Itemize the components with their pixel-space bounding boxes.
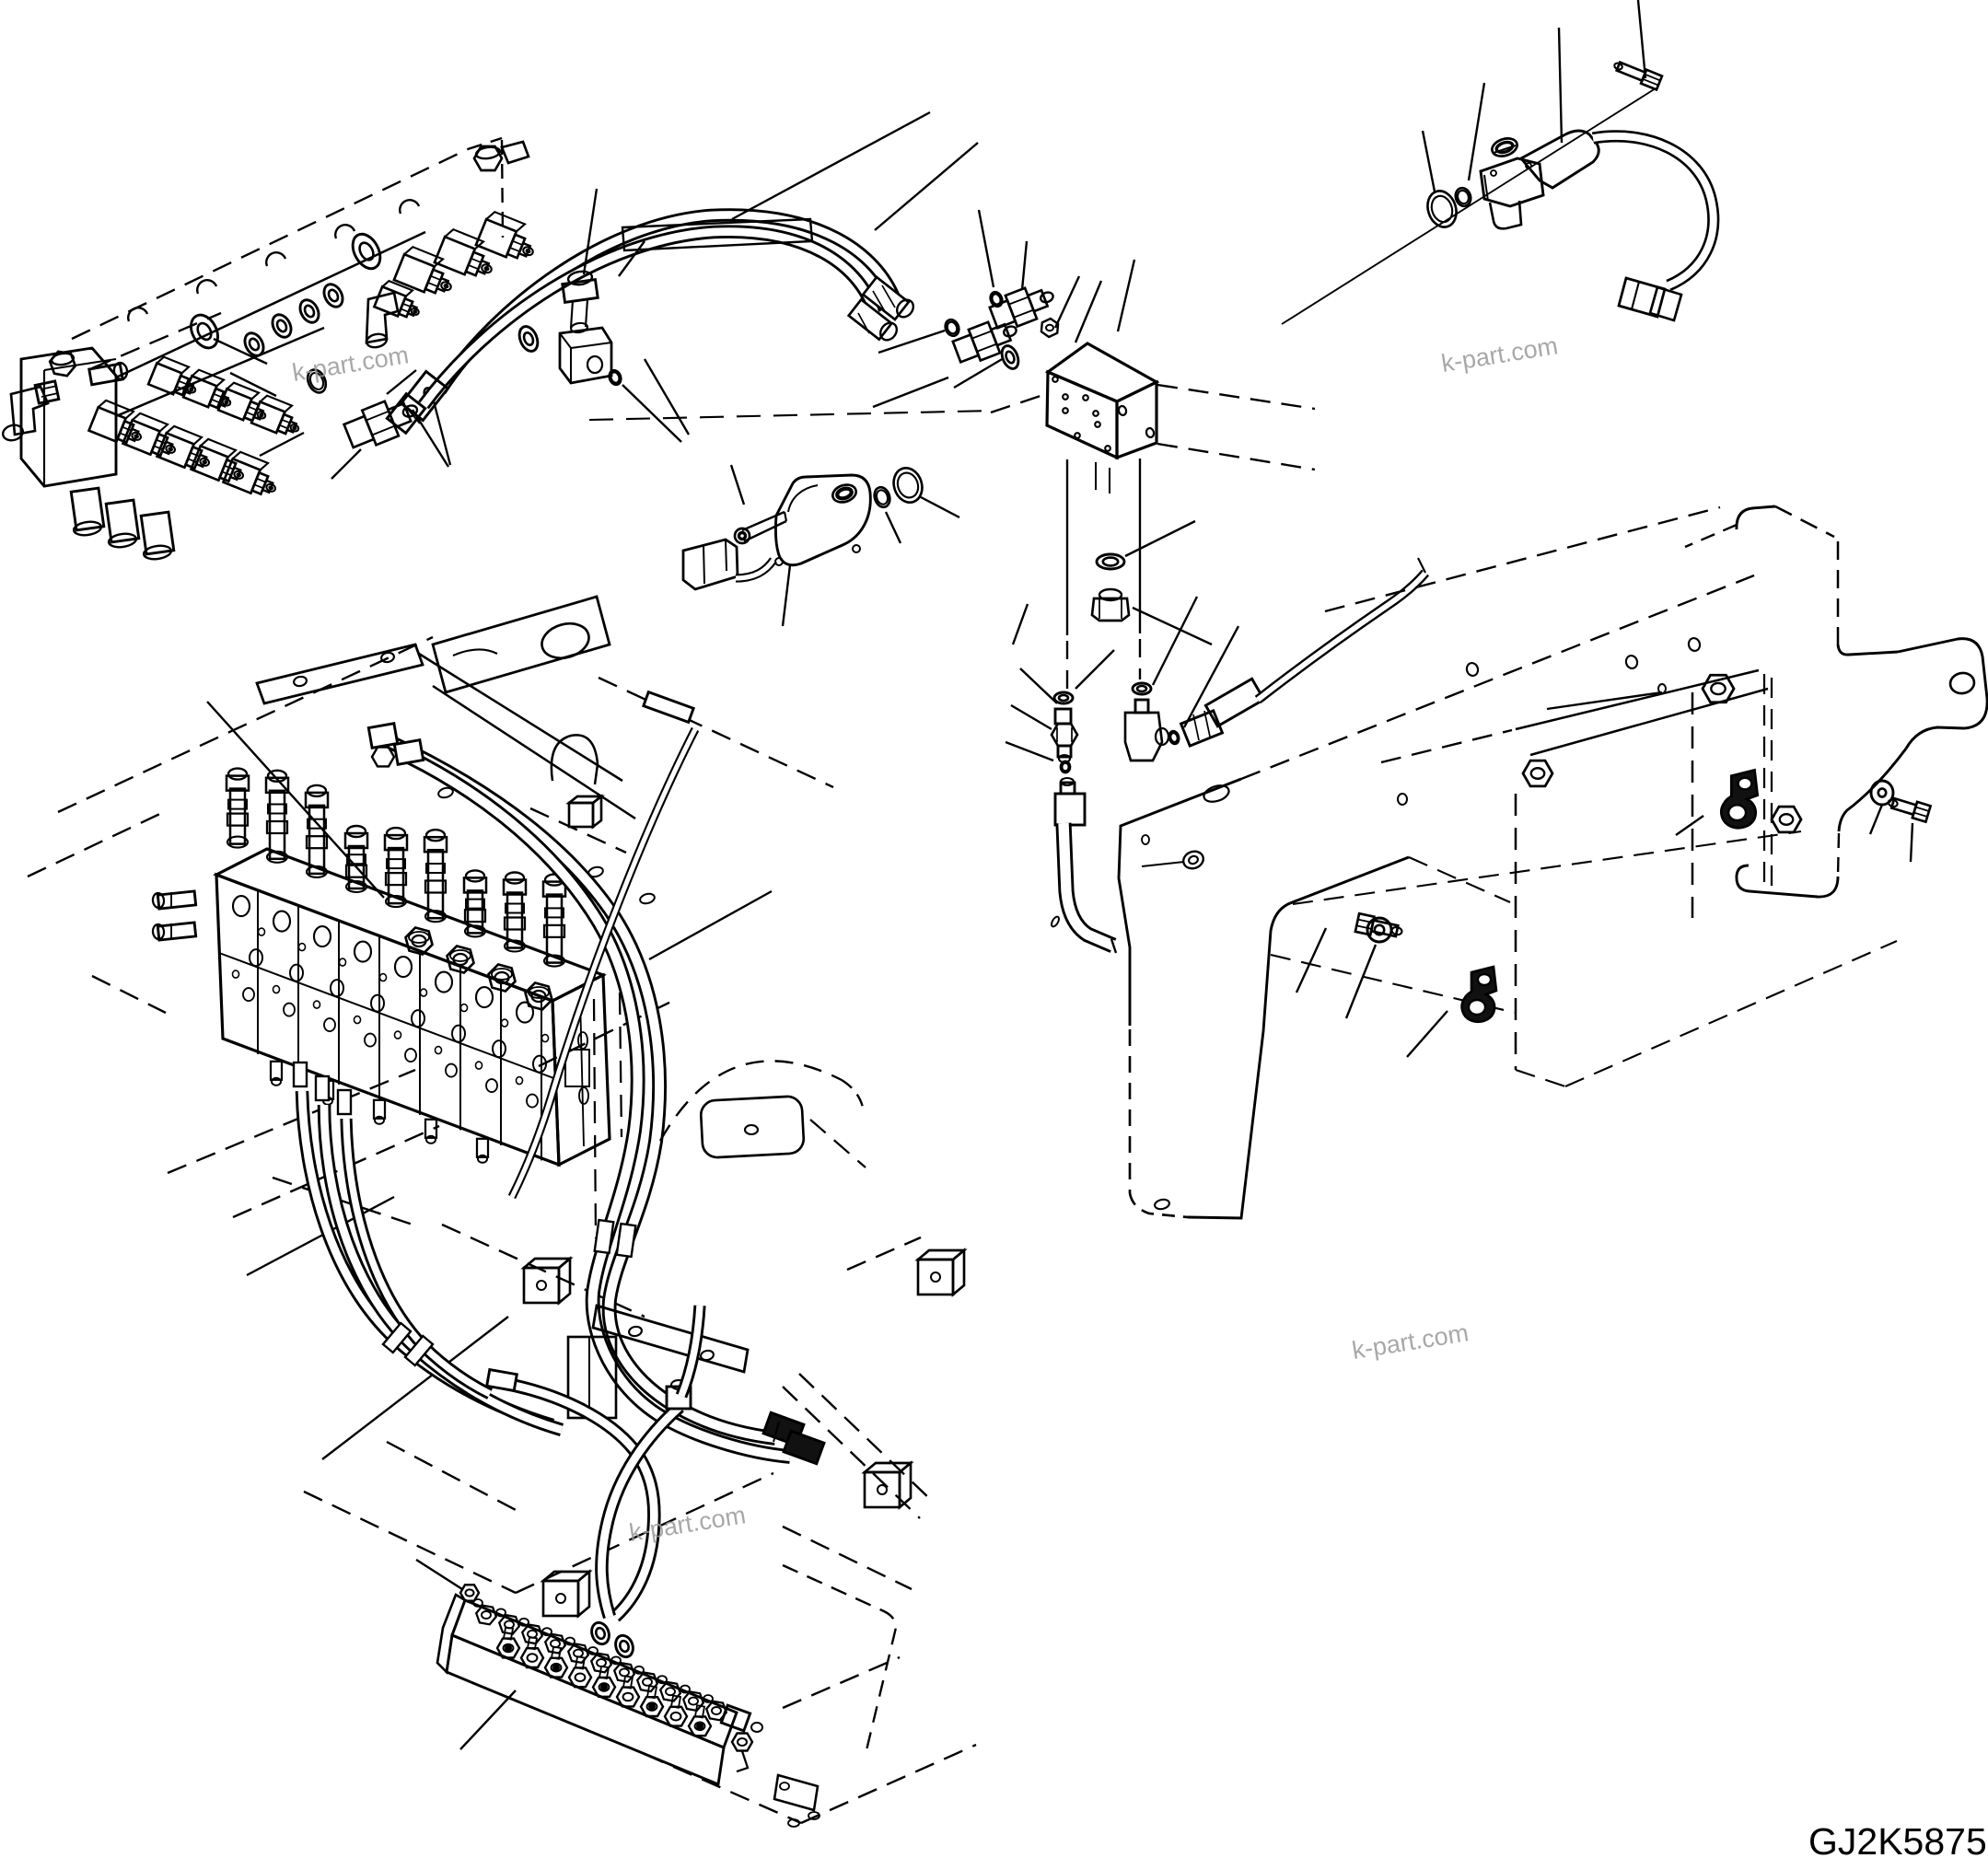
svg-text:GJ2K5875: GJ2K5875 <box>1808 1820 1987 1858</box>
